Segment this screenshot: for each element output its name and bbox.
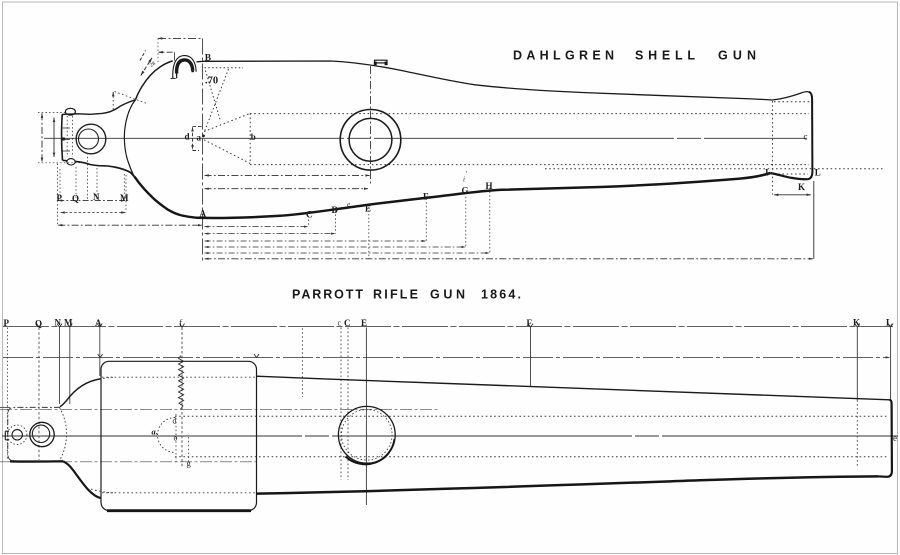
svg-text:N: N [55,318,62,328]
svg-text:GUN: GUN [718,49,756,63]
svg-text:.70: .70 [205,76,218,87]
svg-text:e: e [347,201,350,209]
svg-text:D: D [332,205,339,215]
svg-text:d: d [185,132,190,142]
svg-text:F: F [527,318,533,328]
svg-text:C: C [344,318,351,328]
svg-text:H: H [486,181,493,191]
svg-text:M: M [120,193,129,203]
svg-text:L: L [886,318,892,328]
svg-text:': ' [466,170,467,178]
svg-text:e: e [893,433,897,443]
svg-text:A: A [95,318,102,328]
svg-text:PARROTT: PARROTT [292,288,363,302]
svg-text:g: g [187,458,192,468]
svg-text:28: 28 [149,61,157,69]
svg-text:f: f [179,318,182,328]
svg-text:b: b [251,132,256,142]
svg-text:G: G [462,186,469,196]
svg-text:K: K [853,318,860,328]
svg-text:M: M [64,318,73,328]
svg-text:A: A [200,209,207,219]
svg-text:GUN: GUN [430,288,465,302]
svg-text:o: o [174,434,178,443]
svg-text:B: B [205,53,212,63]
svg-text:c: c [804,132,808,142]
svg-text:1864.: 1864. [481,288,521,302]
svg-text:d: d [173,417,177,426]
svg-text:SHELL: SHELL [635,49,695,63]
svg-text:L: L [815,168,821,178]
svg-text:F: F [423,192,429,202]
svg-text:DAHLGREN: DAHLGREN [513,49,614,63]
svg-text:E: E [365,203,371,213]
svg-text:a.: a. [152,427,158,437]
svg-text:K: K [798,182,805,192]
svg-text:Q: Q [72,193,79,203]
svg-text:Q: Q [35,318,42,328]
svg-text:i: i [463,176,465,184]
svg-text:I: I [765,168,769,178]
svg-text:P: P [57,193,63,203]
svg-text:C: C [306,210,313,220]
svg-text:N: N [93,192,100,202]
svg-text:P: P [4,318,10,328]
svg-text:c: c [338,319,342,328]
svg-text:RIFLE: RIFLE [373,288,418,302]
svg-text:E: E [361,318,367,328]
svg-text:a: a [197,132,202,142]
